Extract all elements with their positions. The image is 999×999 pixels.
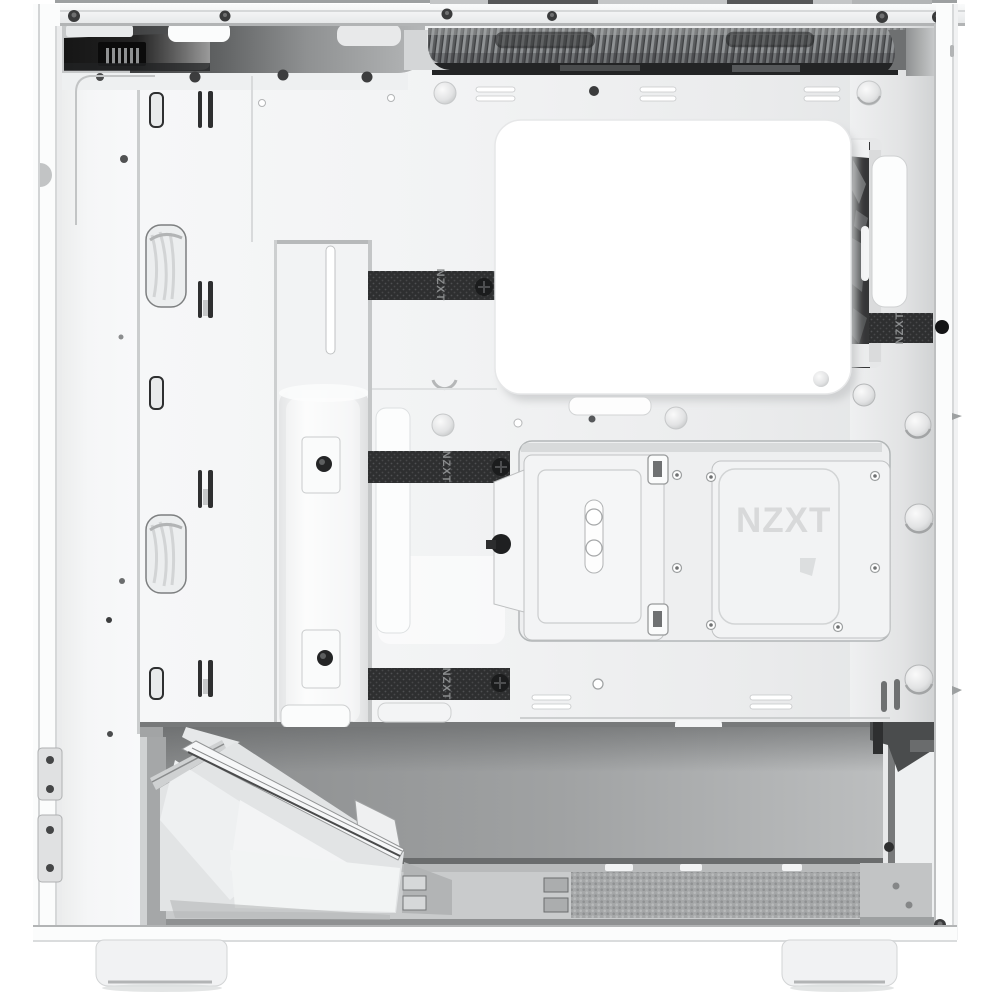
svg-text:NZXT: NZXT xyxy=(440,668,452,701)
svg-text:NZXT: NZXT xyxy=(434,269,446,302)
svg-text:NZXT: NZXT xyxy=(894,312,906,345)
svg-text:NZXT: NZXT xyxy=(736,501,831,540)
svg-text:NZXT: NZXT xyxy=(440,451,452,484)
